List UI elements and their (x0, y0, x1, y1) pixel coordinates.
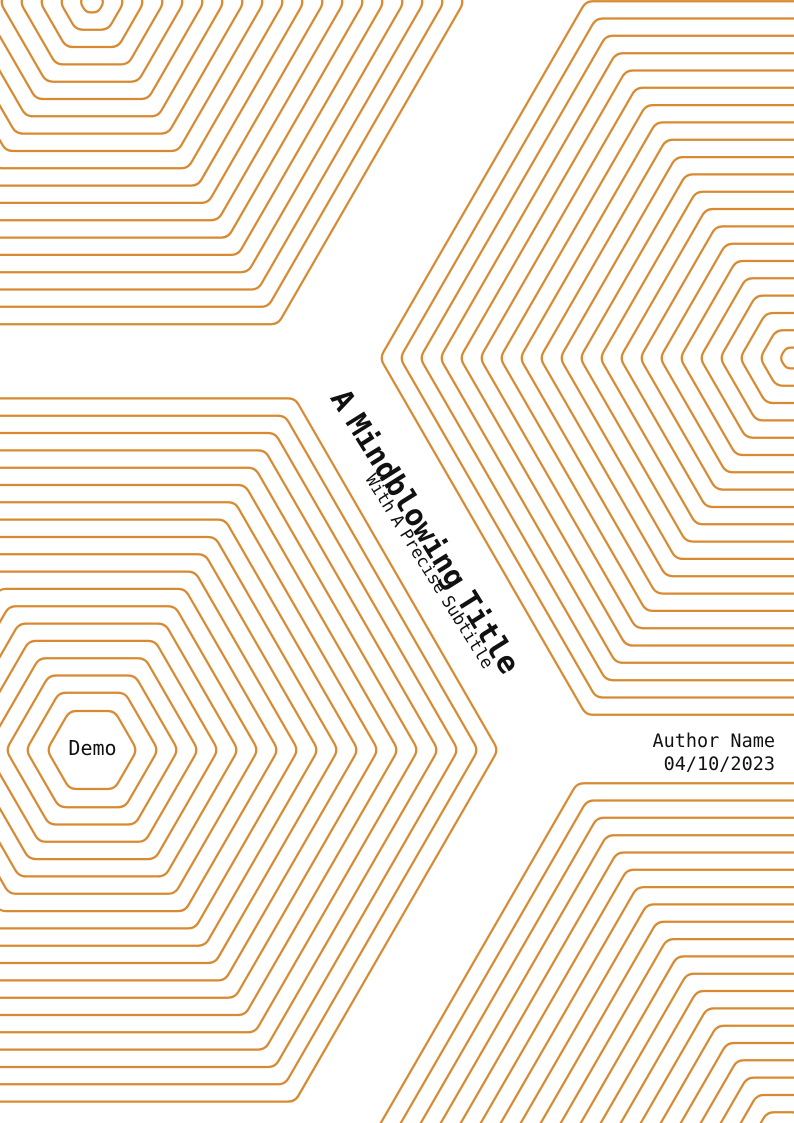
document-date: 04/10/2023 (652, 753, 775, 776)
hexagon-group-bottom-right (373, 783, 794, 1123)
hexagon-pattern-background (0, 0, 794, 1123)
hexagon-group-top-left (0, 0, 462, 324)
title-page: A Mindblowing Title With A Precise Subti… (0, 0, 794, 1123)
demo-badge: Demo (32, 736, 153, 760)
author-block: Author Name 04/10/2023 (652, 730, 775, 776)
author-name: Author Name (652, 730, 775, 753)
